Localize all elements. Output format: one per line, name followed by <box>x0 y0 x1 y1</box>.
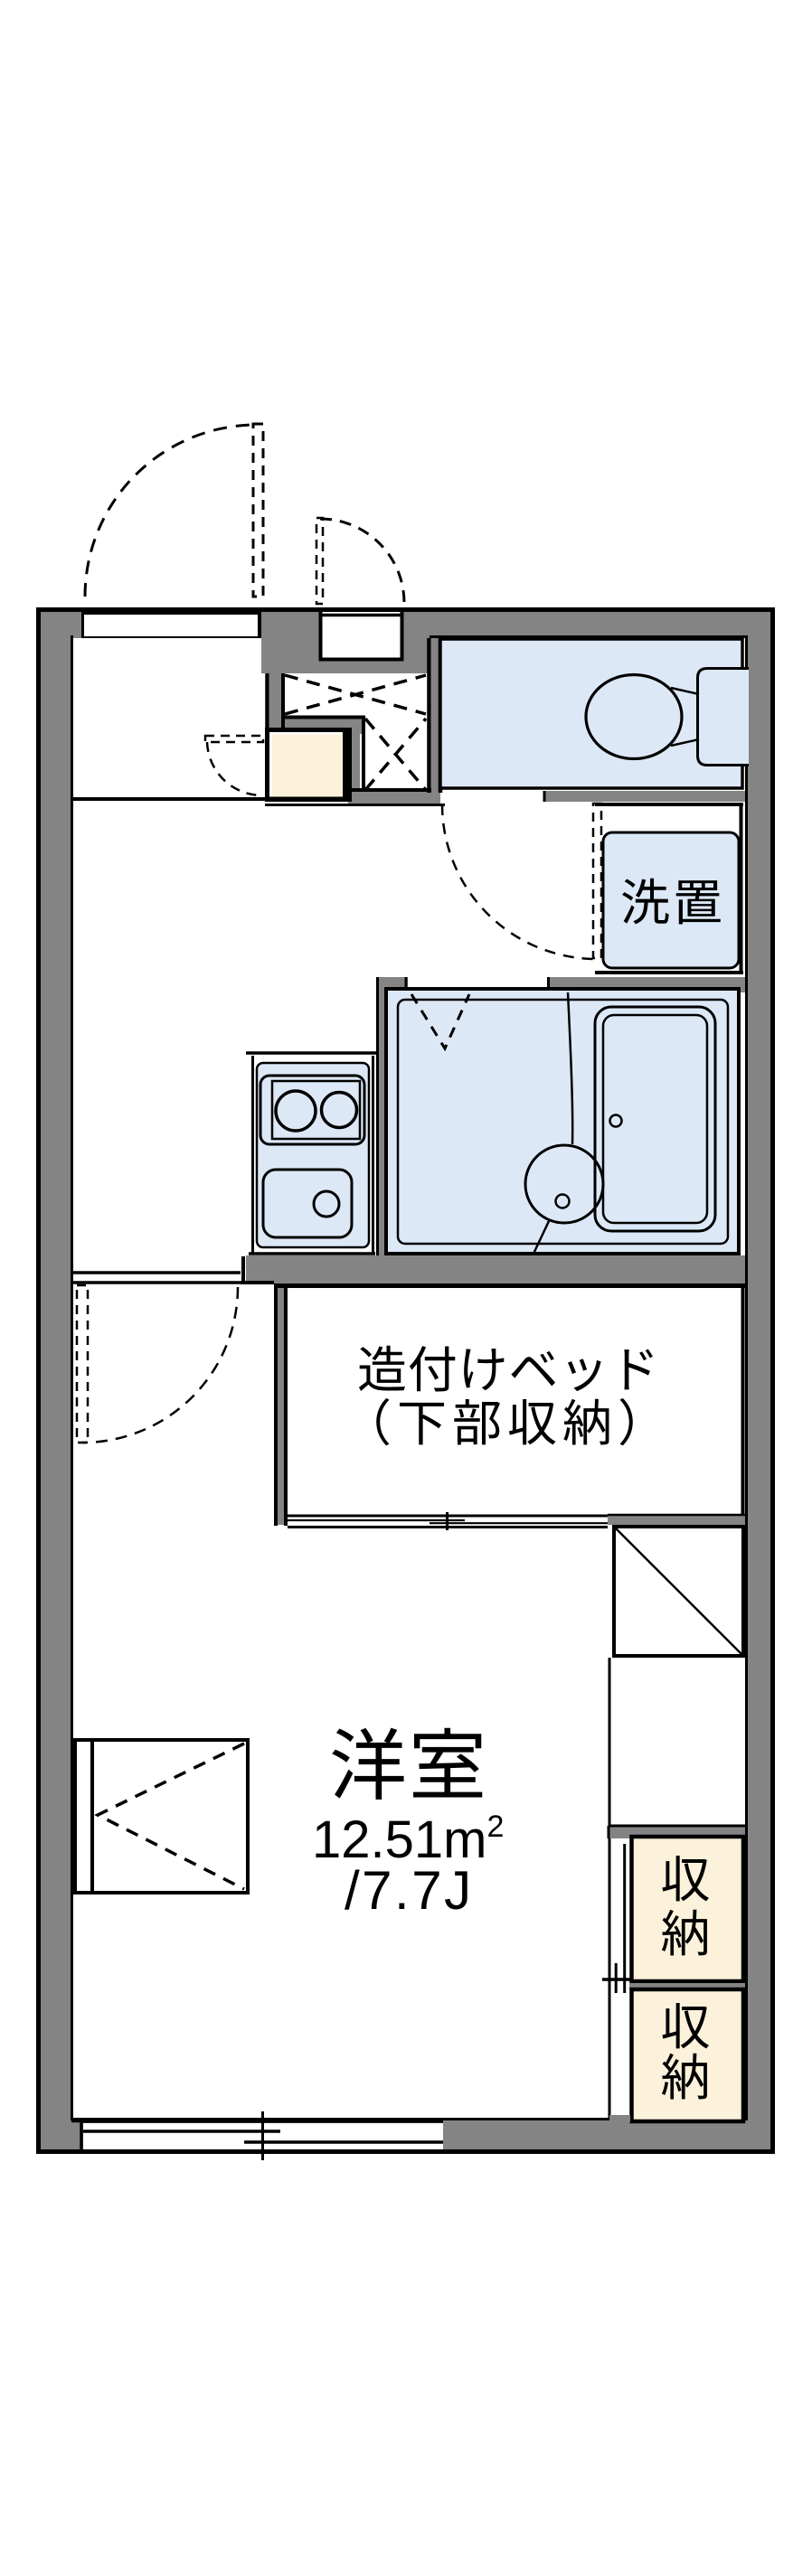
svg-text:/7.7J: /7.7J <box>345 1860 474 1921</box>
